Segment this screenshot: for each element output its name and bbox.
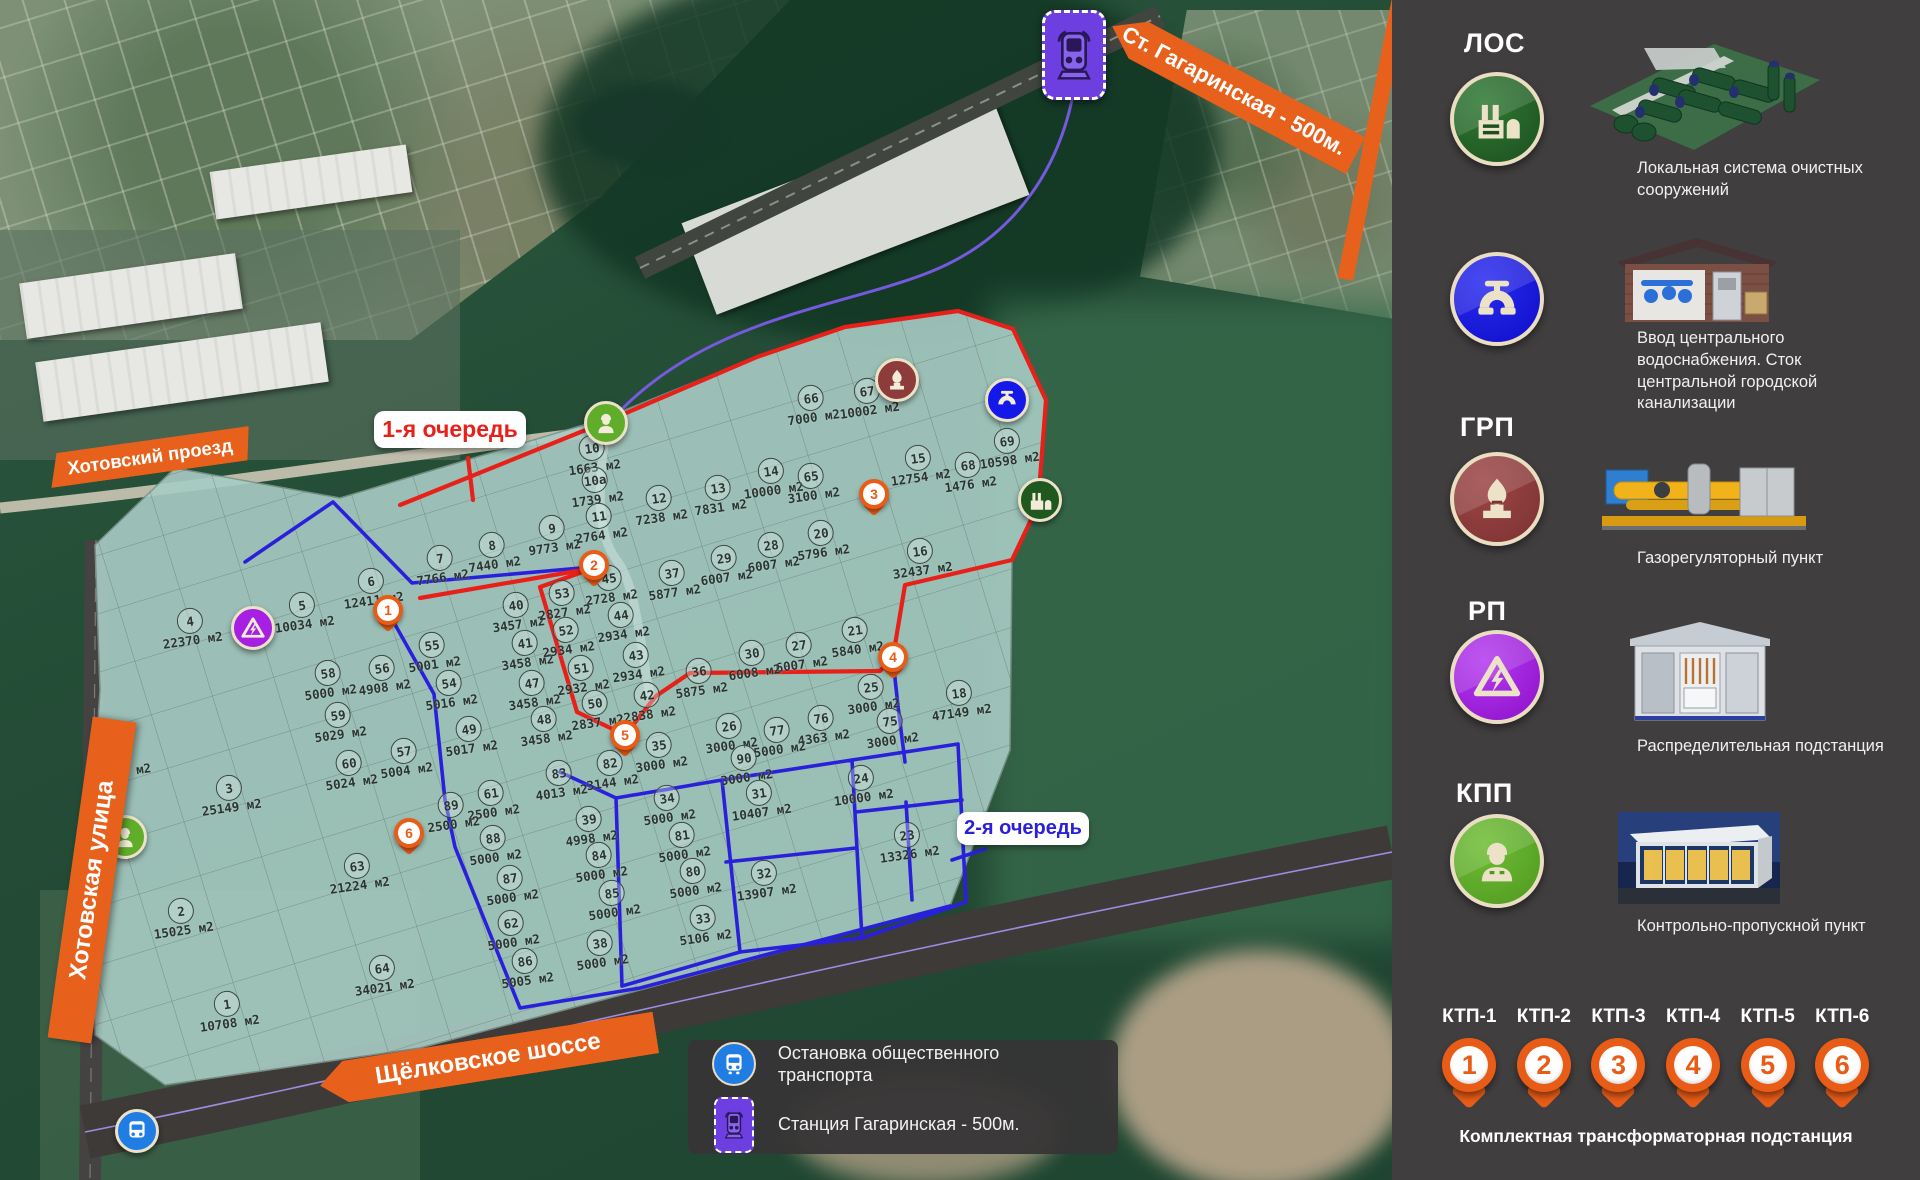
legend-row-bus: Остановка общественного транспорта [688,1042,1118,1087]
kpp-title: КПП [1456,778,1513,809]
ktp-pins-row: 1 2 3 4 5 6 [1432,1038,1880,1116]
site-plan-overlay [0,0,1392,1180]
los-title: ЛОС [1464,28,1525,59]
rp-illustration [1630,622,1770,735]
rp-caption: Распределительная подстанция [1637,736,1897,758]
ktp-pin-5: 5 [1740,1038,1796,1116]
phase1-label: 1-я очередь [374,411,526,448]
los-caption: Локальная система очистных сооружений [1637,158,1897,202]
grp-title: ГРП [1460,412,1514,443]
ktp-pin-3: 3 [1590,1038,1646,1116]
ktp-pin-6: 6 [1814,1038,1870,1116]
ktp-label: КТП-1 [1432,1006,1507,1028]
map-area[interactable]: 110708 м2215025 м2325149 м2422370 м25100… [0,0,1392,1180]
grp-caption: Газорегуляторный пункт [1637,548,1897,570]
water-illustration [1617,238,1777,335]
ktp-caption: Комплектная трансформаторная подстанция [1392,1126,1920,1147]
ktp-pin-1: 1 [1441,1038,1497,1116]
legend-train-label: Станция Гагаринская - 500м. [778,1113,1019,1136]
rp-title: РП [1468,596,1506,627]
grp-illustration [1592,452,1824,545]
kpp-caption: Контрольно-пропускной пункт [1637,916,1897,938]
los-illustration [1582,28,1827,165]
ktp-pin-2: 2 [1516,1038,1572,1116]
ktp-label: КТП-5 [1730,1006,1805,1028]
train-station-legend-icon [714,1097,754,1153]
kpp-illustration [1618,812,1780,909]
ktp-label: КТП-2 [1507,1006,1582,1028]
legend-bus-label: Остановка общественного транспорта [778,1042,1098,1087]
ktp-label: КТП-4 [1656,1006,1731,1028]
legend-sidebar: ЛОС [1392,0,1920,1180]
ktp-labels-row: КТП-1 КТП-2 КТП-3 КТП-4 КТП-5 КТП-6 [1432,1006,1880,1028]
legend-row-train: Станция Гагаринская - 500м. [688,1097,1118,1153]
kpp-icon [1450,814,1544,908]
train-station-icon [1042,10,1106,100]
ktp-label: КТП-6 [1805,1006,1880,1028]
rp-icon [1450,630,1544,724]
site-plan-infographic: 110708 м2215025 м2325149 м2422370 м25100… [0,0,1920,1180]
grp-icon [1450,452,1544,546]
water-supply-icon [1450,252,1544,346]
phase2-label: 2-я очередь [957,812,1089,845]
water-caption: Ввод центрального водоснабжения. Сток це… [1637,328,1897,415]
los-icon [1450,72,1544,166]
ktp-label: КТП-3 [1581,1006,1656,1028]
bus-stop-icon [712,1042,756,1086]
ktp-pin-4: 4 [1665,1038,1721,1116]
map-legend: Остановка общественного транспорта Станц… [688,1040,1118,1154]
